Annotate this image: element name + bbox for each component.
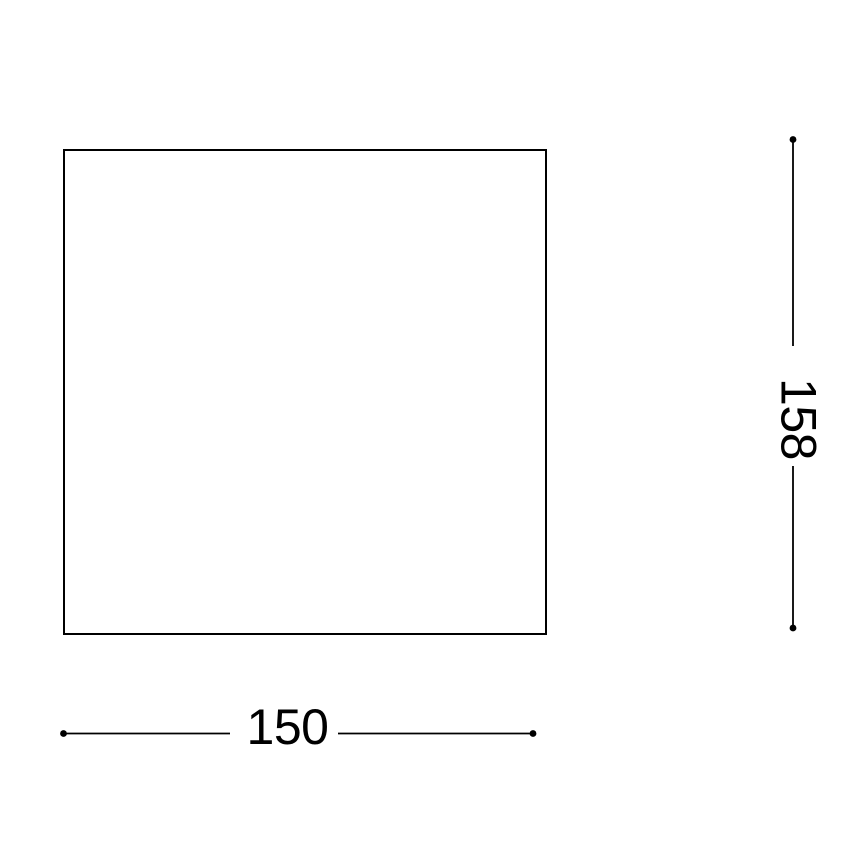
part-outline xyxy=(64,150,546,634)
height-dim-endpoint-top-dot xyxy=(790,136,797,143)
width-dimension: 150 xyxy=(60,699,536,755)
width-dimension-label: 150 xyxy=(247,699,329,755)
dimension-diagram-canvas: 150 158 xyxy=(0,0,868,868)
width-dim-endpoint-left-dot xyxy=(60,730,67,737)
height-dimension: 158 xyxy=(771,136,827,631)
height-dim-endpoint-bottom-dot xyxy=(790,625,797,632)
width-dim-endpoint-right-dot xyxy=(530,730,537,737)
dimension-diagram: 150 158 xyxy=(0,0,868,868)
height-dimension-label: 158 xyxy=(771,378,827,460)
